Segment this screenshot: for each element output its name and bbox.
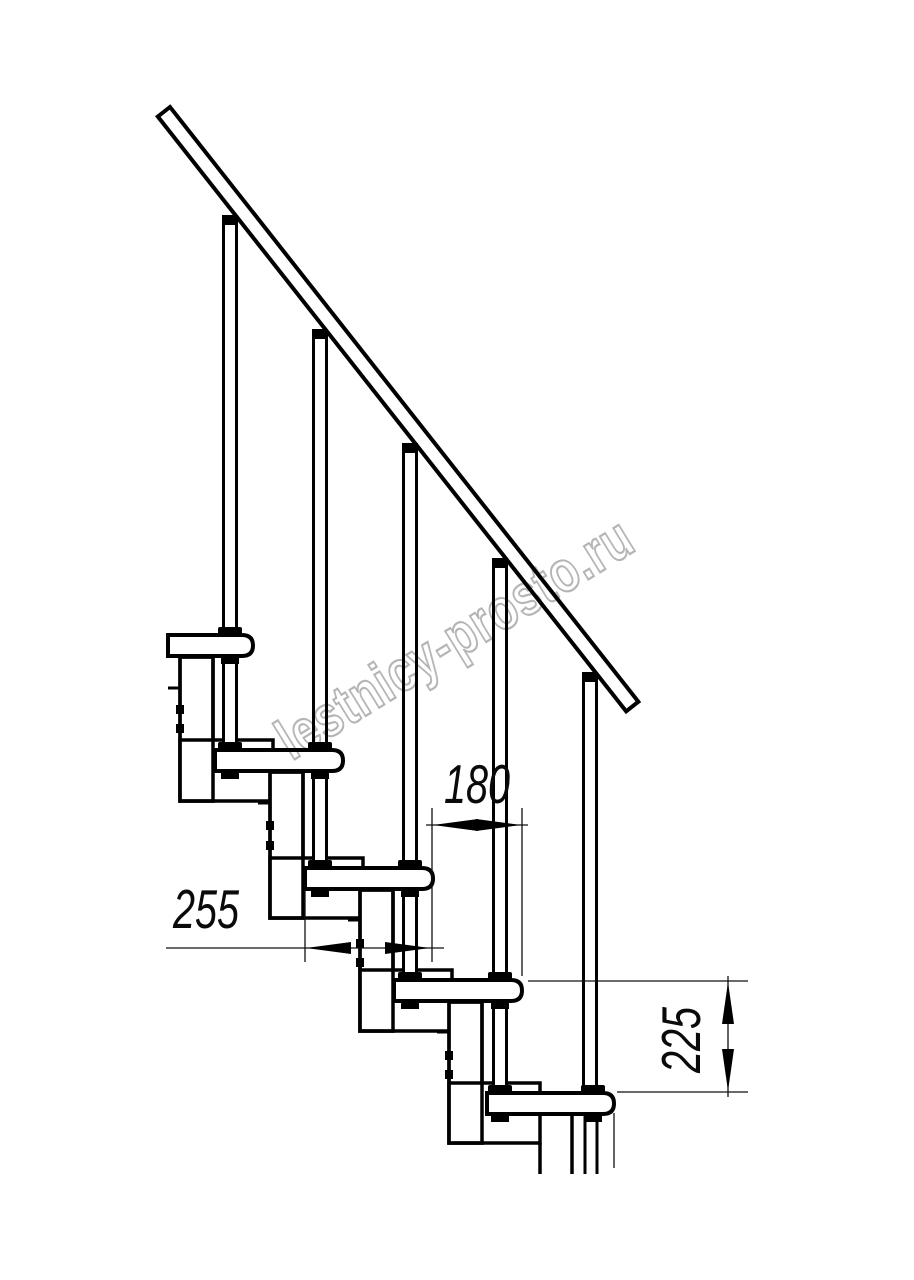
baluster-foot-icon (488, 1085, 512, 1094)
arrow-down-icon (722, 1049, 734, 1091)
baluster-nut-icon (221, 657, 239, 664)
baluster-foot-icon (218, 627, 242, 636)
column-bolt-icon (176, 705, 184, 714)
arrow-up-icon (722, 982, 734, 1024)
technical-drawing-canvas: 180 255 225 lestnicy-prosto.ru (0, 0, 914, 1280)
baluster-foot-icon (488, 972, 512, 981)
support-module-4 (437, 1002, 540, 1143)
column-bolt-icon (266, 821, 274, 830)
rail-flange-icon (492, 558, 508, 568)
baluster-nut-icon (584, 1115, 602, 1122)
support-module-2 (258, 772, 363, 918)
staircase-drawing: 180 255 225 lestnicy-prosto.ru (0, 0, 914, 1280)
arrow-left-icon (306, 942, 351, 954)
column-bolt-icon (356, 939, 364, 948)
dimension-tread-depth-label: 255 (172, 880, 239, 941)
baluster-nut-icon (491, 1115, 509, 1122)
support-module-5 (540, 1113, 614, 1174)
baluster-foot-icon (398, 860, 422, 869)
rail-flange-icon (402, 443, 418, 453)
baluster-2 (314, 333, 327, 870)
rail-flange-icon (312, 329, 328, 339)
dimension-step-run: 180 (426, 755, 528, 976)
baluster-1 (224, 219, 237, 752)
baluster-nut-icon (401, 1002, 419, 1009)
dimension-step-rise-label: 225 (652, 1007, 713, 1074)
dimension-step-run-label: 180 (444, 755, 510, 816)
baluster-nut-icon (311, 772, 329, 779)
baluster-foot-icon (308, 860, 332, 869)
support-module-1 (168, 657, 273, 801)
baluster-3 (404, 447, 417, 982)
baluster-foot-icon (581, 1085, 605, 1094)
baluster-5 (584, 676, 597, 1095)
baluster-nut-icon (311, 890, 329, 897)
tread-1 (168, 635, 253, 656)
tread-5 (487, 1093, 614, 1114)
baluster-foot-icon (218, 742, 242, 751)
arrow-left-icon (433, 819, 478, 831)
column-bolt-icon (266, 841, 274, 850)
support-module-3 (348, 890, 452, 1031)
baluster-nut-icon (401, 890, 419, 897)
tread-4 (394, 980, 522, 1001)
column-bolt-icon (445, 1070, 453, 1079)
column-bolt-icon (176, 724, 184, 733)
baluster-nut-icon (491, 1002, 509, 1009)
column-bolt-icon (445, 1051, 453, 1060)
baluster-nut-icon (221, 772, 239, 779)
dimension-step-rise: 225 (528, 976, 748, 1097)
tread-3 (305, 868, 433, 889)
rail-flange-icon (582, 672, 598, 682)
rail-flange-icon (222, 215, 238, 225)
baluster-foot-icon (398, 972, 422, 981)
column-bolt-icon (356, 958, 364, 967)
